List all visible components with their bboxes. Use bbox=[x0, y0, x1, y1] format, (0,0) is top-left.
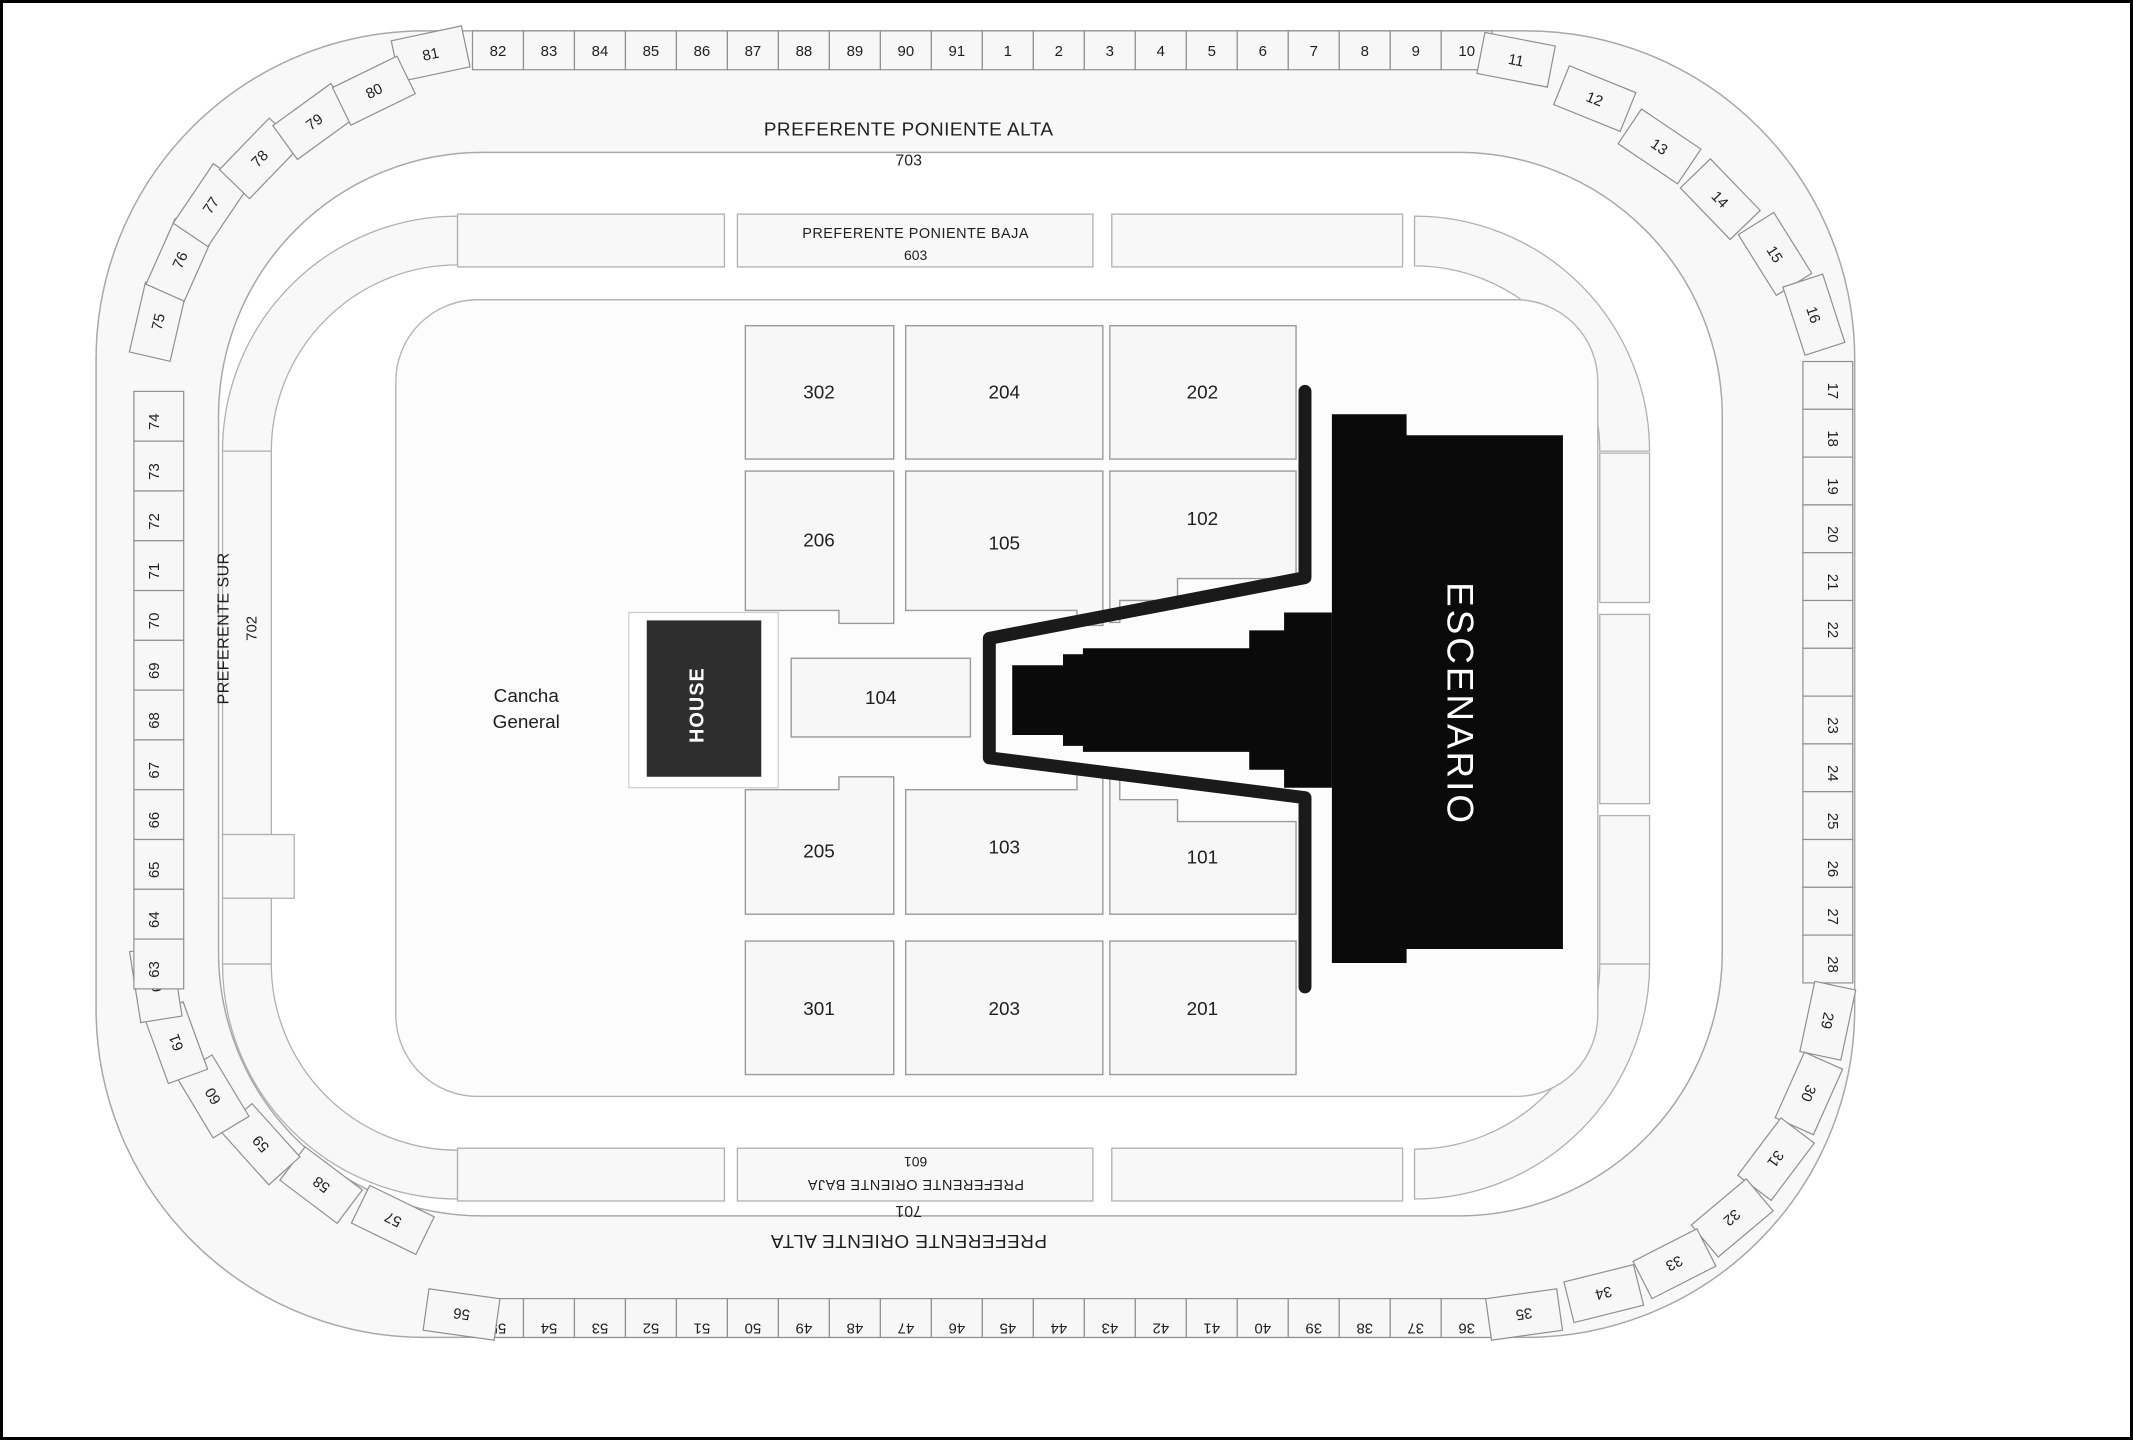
lower-ring-segment bbox=[1112, 214, 1403, 267]
ring-section-label: 50 bbox=[745, 1319, 762, 1336]
ring-section-label: 65 bbox=[146, 862, 163, 879]
ring-section-label: 66 bbox=[146, 812, 163, 829]
ring-section-label: 25 bbox=[1824, 813, 1841, 830]
ring-section-label: 1 bbox=[1004, 43, 1012, 60]
ring-section-label: 69 bbox=[146, 662, 163, 679]
ring-section-label: 64 bbox=[146, 911, 163, 928]
ring-section-label: 21 bbox=[1824, 574, 1841, 591]
ring-section-label: 46 bbox=[949, 1319, 966, 1336]
ring-section-label: 85 bbox=[643, 43, 660, 60]
ring-section[interactable] bbox=[1803, 648, 1853, 696]
label: PREFERENTE ORIENTE BAJA bbox=[807, 1176, 1024, 1192]
ring-section-label: 47 bbox=[898, 1319, 915, 1336]
lower-ring-segment bbox=[1600, 816, 1650, 964]
label: 701 bbox=[895, 1202, 922, 1219]
ring-section-label: 67 bbox=[146, 762, 163, 779]
ring-section-label: 6 bbox=[1259, 43, 1267, 60]
ring-section-label: 40 bbox=[1254, 1319, 1271, 1336]
ring-section-label: 56 bbox=[452, 1304, 471, 1323]
ring-section-label: 83 bbox=[541, 43, 558, 60]
ring-section-label: 3 bbox=[1106, 43, 1114, 60]
ring-section-label: 28 bbox=[1824, 956, 1841, 973]
seating-map-svg: 302204202206105102205103101301203201104H… bbox=[3, 3, 2130, 1437]
ring-section-label: 17 bbox=[1824, 383, 1841, 400]
lower-ring-segment bbox=[458, 1148, 725, 1201]
upper-ring-top-title: PREFERENTE PONIENTE ALTA bbox=[764, 119, 1054, 140]
upper-ring-top-number: 703 bbox=[895, 152, 922, 169]
floor-section-label: 101 bbox=[1187, 847, 1219, 868]
ring-section-label: 68 bbox=[146, 712, 163, 729]
ring-section-label: 29 bbox=[1817, 1011, 1837, 1031]
ring-section-label: 18 bbox=[1824, 430, 1841, 447]
ring-section-label: 52 bbox=[643, 1319, 660, 1336]
ring-section-label: 8 bbox=[1361, 43, 1369, 60]
floor-section-label: 103 bbox=[988, 837, 1020, 858]
ring-section-label: 5 bbox=[1208, 43, 1216, 60]
ring-section-label: 39 bbox=[1305, 1319, 1322, 1336]
ring-section-label: 81 bbox=[421, 45, 441, 65]
ring-section-label: 82 bbox=[490, 43, 507, 60]
floor-section-label: 302 bbox=[803, 382, 835, 403]
ring-section-label: 43 bbox=[1102, 1319, 1119, 1336]
lower-ring-segment bbox=[223, 898, 272, 964]
ring-section-label: 22 bbox=[1824, 622, 1841, 639]
floor-section-label: 202 bbox=[1187, 382, 1219, 403]
ring-section-label: 73 bbox=[146, 463, 163, 480]
ring-section-label: 44 bbox=[1051, 1319, 1068, 1336]
ring-section-label: 72 bbox=[146, 513, 163, 530]
lower-ring-segment bbox=[1600, 614, 1650, 803]
ring-section-label: 51 bbox=[694, 1319, 711, 1336]
ring-section-label: 26 bbox=[1824, 861, 1841, 878]
floor-section-label: 204 bbox=[988, 382, 1020, 403]
floor-section-label: 105 bbox=[988, 534, 1020, 555]
ring-section-label: 74 bbox=[146, 413, 163, 430]
ring-section-label: 88 bbox=[796, 43, 813, 60]
ring-section-label: 36 bbox=[1458, 1319, 1475, 1336]
ring-section-label: 2 bbox=[1055, 43, 1063, 60]
ring-section-label: 4 bbox=[1157, 43, 1165, 60]
label: 601 bbox=[904, 1154, 928, 1170]
ring-section-label: 7 bbox=[1310, 43, 1318, 60]
label: 702 bbox=[243, 616, 260, 641]
ring-section-label: 49 bbox=[796, 1319, 813, 1336]
floor-section-label: 301 bbox=[803, 999, 835, 1020]
lower-ring-segment bbox=[458, 214, 725, 267]
ring-section-label: 48 bbox=[847, 1319, 864, 1336]
ring-section-label: 84 bbox=[592, 43, 609, 60]
cancha-general-label-line1: Cancha bbox=[494, 686, 560, 707]
ring-section-label: 63 bbox=[146, 961, 163, 978]
ring-section-label: 54 bbox=[541, 1319, 558, 1336]
ring-section-label: 38 bbox=[1356, 1319, 1373, 1336]
lower-ring-segment bbox=[223, 835, 295, 899]
ring-section-label: 27 bbox=[1824, 908, 1841, 925]
ring-section-label: 19 bbox=[1824, 478, 1841, 495]
ring-section-label: 70 bbox=[146, 613, 163, 630]
ring-section-label: 9 bbox=[1412, 43, 1420, 60]
ring-section-label: 71 bbox=[146, 563, 163, 580]
stadium-seating-map: 302204202206105102205103101301203201104H… bbox=[0, 0, 2133, 1440]
ring-section-label: 23 bbox=[1824, 717, 1841, 734]
ring-section-label: 24 bbox=[1824, 765, 1841, 782]
ring-section-label: 86 bbox=[694, 43, 711, 60]
ring-section-label: 45 bbox=[1000, 1319, 1017, 1336]
floor-section-label: 102 bbox=[1187, 509, 1219, 530]
floor-section-label: 203 bbox=[988, 999, 1020, 1020]
lower-ring-segment bbox=[1600, 453, 1650, 602]
house-label: HOUSE bbox=[687, 667, 709, 743]
cancha-general-label-line2: General bbox=[493, 712, 560, 733]
ring-section-label: 41 bbox=[1203, 1319, 1220, 1336]
ring-section-label: 11 bbox=[1507, 51, 1525, 71]
ring-section-label: 37 bbox=[1407, 1319, 1424, 1336]
ring-section-label: 42 bbox=[1153, 1319, 1170, 1336]
ring-section-label: 89 bbox=[847, 43, 864, 60]
ring-section-label: 35 bbox=[1515, 1304, 1534, 1323]
label: PREFERENTE SUR bbox=[216, 552, 233, 704]
ring-section-label: 10 bbox=[1458, 43, 1475, 60]
lower-ring-top-title: PREFERENTE PONIENTE BAJA bbox=[802, 226, 1029, 242]
lower-ring-segment bbox=[1112, 1148, 1403, 1201]
label: PREFERENTE ORIENTE ALTA bbox=[770, 1230, 1047, 1251]
ring-section-label: 90 bbox=[898, 43, 915, 60]
ring-section-label: 20 bbox=[1824, 526, 1841, 543]
floor-section-label: 205 bbox=[803, 841, 835, 862]
stage-label: ESCENARIO bbox=[1439, 582, 1480, 826]
ring-section-label: 87 bbox=[745, 43, 762, 60]
lower-ring-top-number: 603 bbox=[904, 247, 928, 263]
floor-section-label: 206 bbox=[803, 531, 835, 552]
floor-section-label: 201 bbox=[1187, 999, 1219, 1020]
ring-section-label: 53 bbox=[592, 1319, 609, 1336]
floor-section-label: 104 bbox=[865, 688, 897, 709]
ring-section-label: 91 bbox=[949, 43, 966, 60]
